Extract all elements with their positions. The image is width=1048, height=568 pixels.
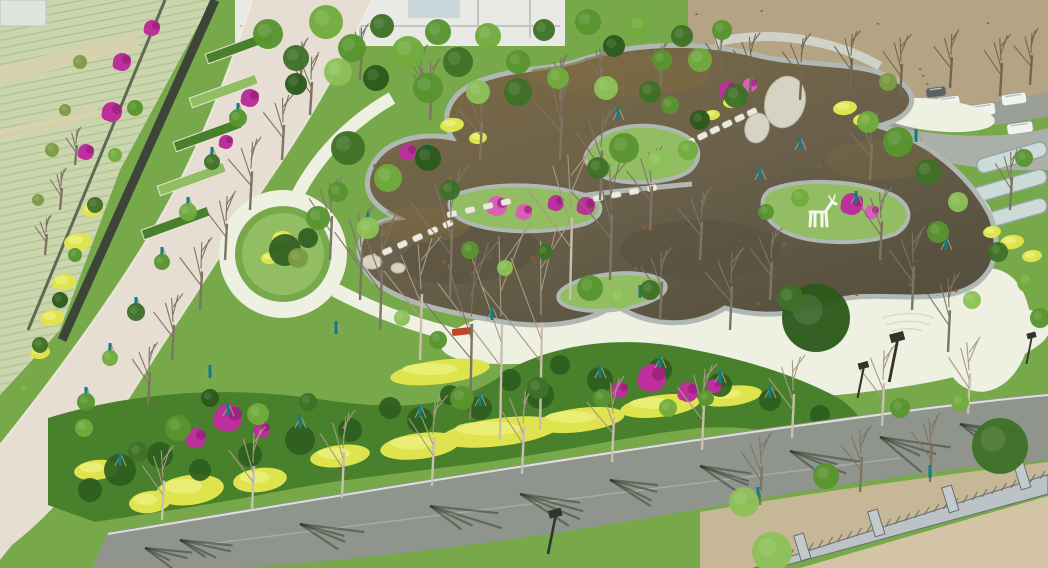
- koi-speckle: [574, 95, 578, 99]
- canopy-highlight: [182, 206, 190, 214]
- bloom: [840, 201, 852, 213]
- bloom: [219, 140, 227, 148]
- canopy-highlight: [34, 196, 39, 201]
- canopy-highlight: [232, 112, 240, 120]
- canopy-highlight: [336, 136, 351, 151]
- canopy-highlight: [760, 206, 767, 213]
- canopy-highlight: [130, 306, 138, 314]
- bloom: [213, 415, 228, 430]
- canopy-highlight: [642, 84, 652, 94]
- canopy-highlight: [470, 84, 481, 95]
- stubble-dot: [926, 83, 929, 85]
- canopy-highlight: [700, 392, 707, 399]
- yellow-hedge-highlight: [836, 103, 849, 110]
- canopy-highlight: [919, 163, 931, 175]
- canopy-highlight: [728, 88, 739, 99]
- pole: [491, 307, 494, 320]
- pole: [119, 453, 122, 466]
- yellow-hedge-highlight: [318, 448, 351, 459]
- canopy-highlight: [397, 41, 411, 55]
- canopy-highlight: [715, 23, 724, 32]
- canopy-highlight: [817, 467, 829, 479]
- koi-speckle: [820, 134, 825, 139]
- bloom-shade: [262, 424, 270, 432]
- canopy-highlight: [360, 220, 370, 230]
- canopy-highlight: [378, 168, 391, 181]
- canopy-highlight: [418, 78, 432, 92]
- canopy-highlight: [954, 396, 962, 404]
- canopy-highlight: [342, 38, 355, 51]
- aerial-photo: [0, 0, 1048, 568]
- koi-speckle: [530, 255, 535, 260]
- canopy-highlight: [632, 18, 643, 29]
- canopy-highlight: [169, 419, 181, 431]
- yellow-hedge-highlight: [985, 228, 995, 234]
- bloom-shade: [112, 104, 122, 114]
- canopy-highlight: [367, 69, 379, 81]
- canopy-highlight: [536, 22, 546, 32]
- canopy-highlight: [80, 396, 88, 404]
- canopy-highlight: [250, 406, 260, 416]
- canopy-highlight: [980, 426, 1005, 451]
- canopy-highlight: [734, 492, 748, 506]
- koi-speckle: [776, 70, 780, 74]
- bloom-shade: [226, 136, 233, 143]
- canopy-highlight: [693, 113, 702, 122]
- canopy-highlight: [429, 23, 441, 35]
- bloom-shade: [652, 367, 666, 381]
- koi-speckle: [442, 260, 446, 264]
- canopy-highlight: [888, 132, 902, 146]
- deer-island: [763, 182, 909, 242]
- shrub: [285, 425, 315, 455]
- canopy-highlight: [590, 160, 600, 170]
- koi-speckle: [954, 289, 958, 293]
- pole: [769, 385, 772, 398]
- bloom-shade: [122, 55, 131, 64]
- koi-speckle: [817, 163, 822, 168]
- stubble-dot: [922, 75, 925, 77]
- bloom: [102, 110, 113, 121]
- bloom: [144, 26, 153, 35]
- koi-speckle: [916, 260, 918, 262]
- canopy-highlight: [61, 106, 66, 111]
- yellow-hedge-highlight: [443, 120, 456, 127]
- canopy-highlight: [104, 352, 111, 359]
- canopy-highlight: [288, 76, 298, 86]
- pole: [659, 355, 662, 368]
- bloom-shade: [524, 206, 532, 214]
- bloom: [548, 201, 557, 210]
- canopy-highlight: [328, 62, 341, 75]
- canopy-highlight: [581, 279, 593, 291]
- yellow-hedge-highlight: [403, 363, 458, 375]
- koi-speckle: [710, 101, 712, 103]
- canopy-highlight: [614, 138, 628, 152]
- koi-speckle: [579, 276, 581, 278]
- koi-speckle: [719, 243, 721, 245]
- pole: [599, 365, 602, 378]
- branch: [311, 57, 312, 80]
- canopy-highlight: [443, 183, 452, 192]
- koi-speckle: [489, 255, 492, 258]
- koi-speckle: [741, 156, 746, 161]
- koi-speckle: [782, 242, 787, 247]
- canopy-highlight: [893, 401, 902, 410]
- koi-speckle: [917, 208, 919, 210]
- koi-speckle: [440, 150, 442, 152]
- koi-speckle: [908, 202, 910, 204]
- koi-speckle: [756, 301, 760, 305]
- canopy-highlight: [131, 445, 140, 454]
- shrub: [298, 228, 318, 248]
- canopy-highlight: [314, 10, 329, 25]
- canopy-highlight: [643, 283, 652, 292]
- yellow-hedge-highlight: [55, 276, 68, 284]
- canopy-highlight: [966, 294, 974, 302]
- canopy-highlight: [204, 392, 212, 400]
- canopy-highlight: [794, 192, 802, 200]
- canopy-highlight: [78, 422, 86, 430]
- pole: [299, 415, 302, 428]
- canopy-highlight: [539, 246, 546, 253]
- bloom: [400, 150, 409, 159]
- canopy-highlight: [606, 38, 616, 48]
- bloom-shade: [196, 430, 206, 440]
- bloom-shade: [250, 91, 259, 100]
- canopy-highlight: [89, 199, 96, 206]
- bloom-shade: [152, 22, 160, 30]
- canopy-highlight: [655, 53, 664, 62]
- canopy-highlight: [448, 52, 462, 66]
- pole: [759, 167, 762, 180]
- canopy-highlight: [206, 156, 213, 163]
- bloom: [78, 150, 87, 159]
- yellow-hedge-highlight: [43, 312, 56, 320]
- canopy-highlight: [579, 13, 591, 25]
- branch: [912, 232, 913, 262]
- canopy-highlight: [681, 143, 690, 152]
- shrub: [379, 397, 401, 419]
- branch: [792, 360, 793, 390]
- pole: [799, 137, 802, 150]
- canopy-highlight: [612, 290, 622, 300]
- canopy-highlight: [464, 244, 472, 252]
- canopy-highlight: [331, 185, 340, 194]
- canopy-highlight: [156, 256, 163, 263]
- canopy-highlight: [860, 114, 870, 124]
- pole: [617, 107, 620, 120]
- pole: [719, 370, 722, 383]
- canopy-highlight: [530, 380, 540, 390]
- canopy-highlight: [419, 149, 431, 161]
- bloom-shade: [620, 384, 628, 392]
- canopy-highlight: [674, 28, 684, 38]
- koi-speckle: [798, 154, 802, 158]
- pole: [227, 403, 230, 416]
- canopy-highlight: [1020, 274, 1030, 284]
- shrub: [189, 459, 211, 481]
- canopy-highlight: [454, 390, 465, 401]
- canopy-highlight: [662, 402, 670, 410]
- bloom: [241, 96, 251, 106]
- canopy-highlight: [930, 224, 940, 234]
- pole: [929, 465, 932, 478]
- canopy-highlight: [54, 294, 61, 301]
- shrub: [550, 355, 570, 375]
- koi-speckle: [833, 97, 836, 100]
- yellow-hedge-highlight: [1025, 252, 1036, 258]
- yellow-hedge-highlight: [455, 422, 521, 436]
- shrub: [78, 478, 102, 502]
- canopy-highlight: [396, 312, 403, 319]
- canopy-highlight: [650, 154, 661, 165]
- yellow-hedge-highlight: [68, 235, 83, 244]
- bloom: [577, 204, 587, 214]
- shrub: [147, 442, 173, 468]
- pole: [209, 365, 212, 378]
- canopy-highlight: [758, 538, 776, 556]
- canopy-highlight: [129, 102, 136, 109]
- pole: [479, 393, 482, 406]
- bloom: [637, 375, 652, 390]
- koi-speckle: [855, 293, 858, 296]
- canopy-highlight: [287, 49, 299, 61]
- koi-speckle: [373, 164, 377, 168]
- canopy-highlight: [258, 24, 272, 38]
- canopy-highlight: [34, 339, 41, 346]
- canopy-highlight: [951, 195, 960, 204]
- stubble-dot: [877, 23, 880, 25]
- canopy-highlight: [781, 289, 793, 301]
- stubble-dot: [987, 23, 990, 25]
- canopy-highlight: [1033, 311, 1042, 320]
- koi-speckle: [571, 120, 573, 122]
- yellow-hedge-highlight: [80, 463, 104, 473]
- canopy-highlight: [20, 385, 26, 391]
- koi-speckle: [913, 155, 916, 158]
- canopy-highlight: [291, 251, 300, 260]
- bloom: [113, 60, 123, 70]
- koi-speckle: [642, 225, 647, 230]
- canopy-highlight: [692, 52, 703, 63]
- canopy-highlight: [75, 57, 81, 63]
- canopy-highlight: [1018, 152, 1026, 160]
- koi-speckle: [880, 262, 882, 264]
- canopy-highlight: [882, 76, 890, 84]
- pole: [855, 191, 858, 204]
- pole: [335, 321, 338, 334]
- bloom-shade: [408, 146, 416, 154]
- stubble-dot: [919, 68, 922, 70]
- canopy-highlight: [70, 250, 76, 256]
- canopy-highlight: [479, 27, 491, 39]
- canopy-highlight: [596, 392, 604, 400]
- canopy-highlight: [499, 262, 506, 269]
- canopy-highlight: [598, 80, 609, 91]
- canopy-highlight: [664, 99, 672, 107]
- yellow-hedge-highlight: [134, 494, 157, 505]
- koi-speckle: [863, 175, 865, 177]
- canopy-highlight: [550, 70, 560, 80]
- koi-speckle: [456, 103, 459, 106]
- canopy-highlight: [374, 18, 385, 29]
- koi-speckle: [634, 267, 638, 271]
- yellow-hedge-highlight: [546, 411, 596, 423]
- koi-speckle: [739, 240, 742, 243]
- canopy-highlight: [47, 145, 53, 151]
- canopy-highlight: [110, 150, 116, 156]
- canopy-highlight: [432, 334, 440, 342]
- yellow-hedge-highlight: [165, 479, 202, 494]
- park-scene: [0, 0, 1048, 568]
- bloom-shade: [86, 146, 94, 154]
- koi-speckle: [913, 161, 915, 163]
- bloom: [516, 210, 525, 219]
- pole: [419, 405, 422, 418]
- canopy-highlight: [510, 54, 521, 65]
- shrub: [338, 418, 362, 442]
- canopy-highlight: [508, 82, 521, 95]
- yellow-hedge-highlight: [1003, 237, 1016, 244]
- canopy-highlight: [991, 245, 1000, 254]
- distant-greenhouse: [0, 0, 46, 26]
- canopy-highlight: [310, 210, 321, 221]
- pole: [915, 129, 918, 142]
- koi-speckle: [538, 95, 541, 98]
- canopy-highlight: [302, 396, 310, 404]
- bloom-shade: [228, 407, 242, 421]
